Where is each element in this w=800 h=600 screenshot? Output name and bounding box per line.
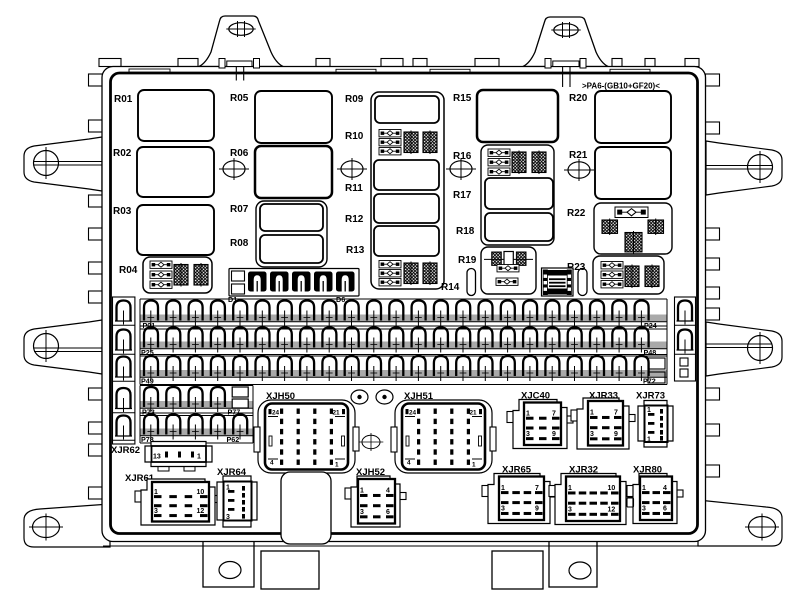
svg-text:R12: R12	[345, 214, 364, 225]
svg-text:XJR62: XJR62	[111, 445, 140, 456]
svg-text:7: 7	[535, 485, 539, 492]
svg-text:R22: R22	[567, 208, 586, 219]
svg-text:R19: R19	[458, 255, 477, 266]
svg-text:1: 1	[501, 485, 505, 492]
svg-text:R15: R15	[453, 93, 472, 104]
svg-text:R14: R14	[441, 282, 460, 293]
svg-text:>PA6-(GB10+GF20)<: >PA6-(GB10+GF20)<	[582, 82, 660, 91]
svg-text:3: 3	[526, 431, 530, 438]
svg-text:7: 7	[552, 410, 556, 417]
svg-text:3: 3	[590, 431, 594, 438]
svg-text:1: 1	[647, 437, 651, 444]
svg-text:13: 13	[153, 454, 161, 461]
svg-text:P62: P62	[227, 435, 240, 444]
svg-text:9: 9	[614, 431, 618, 438]
svg-text:9: 9	[552, 431, 556, 438]
svg-text:R21: R21	[569, 150, 588, 161]
svg-text:12: 12	[197, 508, 205, 515]
svg-text:R09: R09	[345, 94, 364, 105]
svg-text:1: 1	[642, 485, 646, 492]
svg-text:4: 4	[663, 485, 667, 492]
svg-text:10: 10	[197, 489, 205, 496]
svg-text:10: 10	[608, 485, 616, 492]
svg-text:21: 21	[470, 410, 478, 417]
svg-text:3: 3	[568, 507, 572, 514]
svg-text:1: 1	[526, 410, 530, 417]
svg-text:24: 24	[272, 410, 280, 417]
svg-text:R17: R17	[453, 190, 472, 201]
svg-text:R01: R01	[114, 94, 133, 105]
svg-text:1: 1	[226, 485, 230, 492]
svg-text:R18: R18	[456, 226, 475, 237]
svg-text:6: 6	[386, 509, 390, 516]
svg-text:3: 3	[642, 506, 646, 513]
svg-text:24: 24	[409, 410, 417, 417]
svg-text:1: 1	[335, 462, 339, 469]
svg-text:1: 1	[472, 462, 476, 469]
svg-text:1: 1	[568, 485, 572, 492]
svg-text:21: 21	[333, 410, 341, 417]
svg-text:R05: R05	[230, 93, 249, 104]
svg-text:1: 1	[154, 489, 158, 496]
svg-text:7: 7	[614, 410, 618, 417]
svg-text:P72: P72	[643, 376, 656, 385]
svg-text:R02: R02	[113, 148, 132, 159]
svg-text:4: 4	[407, 460, 411, 467]
svg-text:4: 4	[386, 488, 390, 495]
svg-text:R13: R13	[346, 245, 365, 256]
svg-text:R06: R06	[230, 148, 249, 159]
svg-text:R03: R03	[113, 206, 132, 217]
svg-text:9: 9	[535, 506, 539, 513]
svg-text:1: 1	[590, 410, 594, 417]
svg-text:R07: R07	[230, 204, 249, 215]
svg-text:R04: R04	[119, 265, 138, 276]
svg-text:4: 4	[270, 460, 274, 467]
svg-text:1: 1	[197, 454, 201, 461]
svg-text:1: 1	[647, 407, 651, 414]
svg-text:3: 3	[501, 506, 505, 513]
svg-text:3: 3	[360, 509, 364, 516]
svg-text:6: 6	[663, 506, 667, 513]
svg-text:12: 12	[608, 507, 616, 514]
svg-text:3: 3	[226, 514, 230, 521]
svg-text:R11: R11	[345, 183, 363, 194]
svg-text:1: 1	[360, 488, 364, 495]
svg-text:R08: R08	[230, 238, 249, 249]
svg-text:R20: R20	[569, 93, 588, 104]
svg-text:R10: R10	[345, 131, 364, 142]
svg-text:P49: P49	[141, 376, 154, 385]
svg-text:XJR73: XJR73	[636, 391, 665, 402]
svg-text:3: 3	[154, 508, 158, 515]
